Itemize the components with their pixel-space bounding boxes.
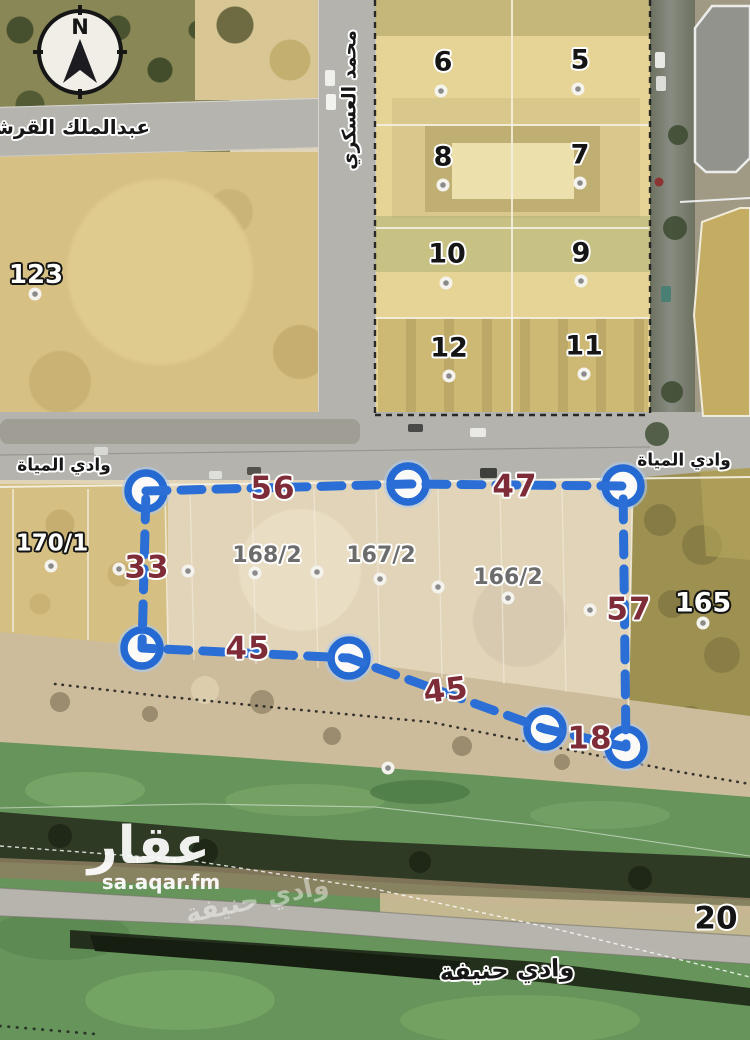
- block-number-6: 6: [434, 49, 453, 76]
- compass-needle-icon: [41, 13, 119, 91]
- parcel-label-168-2: 168/2: [232, 545, 301, 567]
- parcel-label-167-2: 167/2: [346, 545, 415, 567]
- dimension-top-right: 47: [492, 472, 537, 503]
- street-label-abdulmalik: عبدالملك القرشي: [0, 117, 150, 137]
- block-number-8: 8: [434, 144, 453, 171]
- block-number-12: 12: [430, 335, 468, 362]
- parcel-label-166-2: 166/2: [473, 567, 542, 589]
- watermark-site: sa.aqar.fm: [102, 872, 220, 892]
- dimension-right: 57: [606, 595, 651, 626]
- street-label-mohammed-alaskari: محمد العسكري: [341, 30, 360, 170]
- block-number-5: 5: [571, 47, 590, 74]
- parcel-label-20: 20: [694, 904, 737, 935]
- farright-buildings: [680, 6, 750, 416]
- block-number-9: 9: [572, 240, 591, 267]
- dimension-bottom-mid: 45: [422, 673, 471, 709]
- street-label-wadi-almiyah-left: وادي المياة: [17, 458, 111, 475]
- watermark-brand: عقار: [88, 820, 210, 872]
- dimension-left: 33: [124, 553, 169, 584]
- dimension-bottom-left: 45: [225, 634, 270, 665]
- dimension-top-left: 56: [250, 474, 295, 505]
- street-label-wadi-almiyah-right: وادي المياة: [637, 453, 731, 470]
- parcel-label-165: 165: [675, 590, 731, 617]
- parcel-label-170-1: 170/1: [16, 533, 88, 556]
- compass: N: [37, 9, 123, 95]
- block-number-10: 10: [428, 241, 466, 268]
- dimension-bottom-right: 18: [567, 724, 612, 755]
- satellite-map: N عبدالملك القرشي محمد العسكري وادي المي…: [0, 0, 750, 1040]
- street-label-wadi-hanifa: وادي حنيفة: [439, 956, 574, 985]
- block-number-11: 11: [565, 333, 603, 360]
- block-number-7: 7: [571, 142, 590, 169]
- parcel-label-123: 123: [9, 262, 63, 288]
